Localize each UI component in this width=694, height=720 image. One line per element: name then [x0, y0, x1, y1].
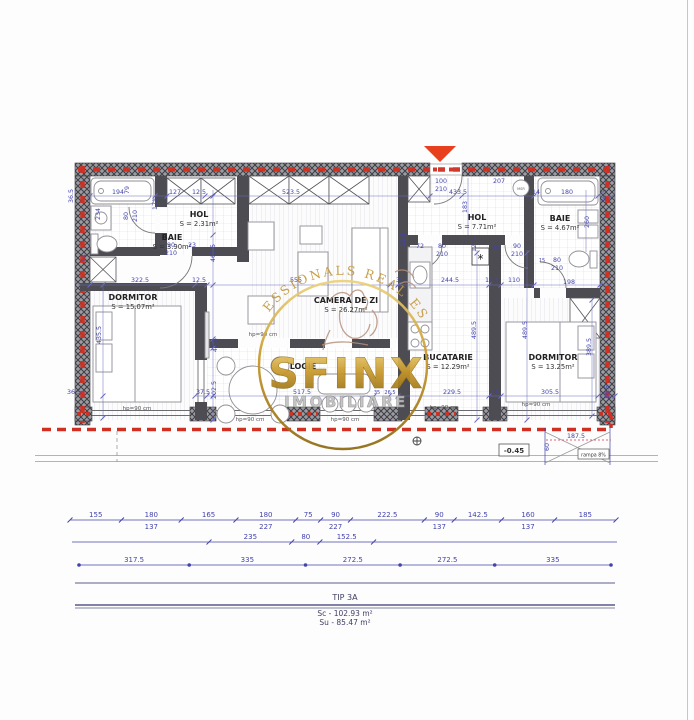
dim-label: 198 — [563, 279, 575, 286]
plan-type-label: TIP 3A — [331, 593, 358, 602]
dim-label: 435.5 — [96, 326, 103, 344]
dim-label: 12.5 — [471, 238, 478, 252]
dim-label: 180 — [561, 189, 573, 196]
dim-label: 110 — [508, 277, 520, 284]
dim-label: 467.5 — [210, 244, 217, 262]
room-name-label: DORMITOR — [109, 293, 158, 302]
room-area-label: S = 2.31m² — [180, 220, 219, 228]
watermark-arc-text: PROFESSIONALS REAL ESTATE — [0, 0, 432, 323]
room-name-label: HOL — [468, 213, 487, 222]
floor-plan-page: -0.45 rampa 8% BAIES = 3.90m²HOLS = 2.31… — [0, 0, 694, 720]
dim-label: 194 — [112, 189, 124, 196]
dim-row-value: 272.5 — [343, 556, 363, 564]
dim-row-subvalue: 137 — [433, 523, 446, 531]
dim-label: 16 — [493, 246, 499, 252]
dim-label: 187.5 — [567, 433, 585, 440]
dim-label: 14 — [491, 389, 499, 396]
title-block: TIP 3A Sc - 102.93 m² Su - 85.47 m² — [75, 583, 615, 627]
dim-label: 36.5 — [601, 189, 608, 203]
dim-row-subvalue: 227 — [259, 523, 272, 531]
dim-label: 171 — [152, 198, 159, 210]
dim-label: 14 — [532, 189, 540, 196]
room-name-label: CAMERA DE ZI — [314, 296, 378, 305]
dim-label: 489.5 — [522, 321, 529, 339]
dim-row-value: 235 — [244, 533, 257, 541]
dim-label: 36.5 — [604, 385, 611, 399]
dim-label: 100 — [435, 178, 447, 185]
dim-row-value: 160 — [521, 511, 534, 519]
dim-label: 244.5 — [441, 277, 459, 284]
dim-row-dot — [187, 563, 191, 567]
dim-row-value: 335 — [241, 556, 254, 564]
dim-label: 60 — [544, 443, 551, 451]
dim-label: 260 — [584, 216, 591, 228]
dim-label: 23 — [188, 242, 196, 249]
room-name-label: BAIE — [162, 233, 183, 242]
dim-label: 229.5 — [443, 389, 461, 396]
dim-label: 210 — [436, 251, 448, 258]
dim-label: 80 — [553, 257, 561, 264]
room-name-label: BUCATARIE — [423, 353, 473, 362]
washer-label: MSR — [517, 187, 525, 191]
dim-label: 90 — [513, 243, 521, 250]
hp-label: hp=90 cm — [522, 402, 551, 408]
dim-label: 127 — [169, 189, 181, 196]
dim-row-dot — [398, 563, 402, 567]
room-name-label: HOL — [190, 210, 209, 219]
level-label: -0.45 — [504, 447, 524, 455]
room-area-label: S = 12.29m² — [426, 363, 469, 371]
drain-icon — [413, 437, 421, 445]
dim-label: 183 — [462, 201, 469, 213]
dim-label: 37.5 — [196, 389, 210, 396]
dim-row-dot — [493, 563, 497, 567]
watermark-brand: SFINX — [268, 349, 425, 398]
dim-label: 90 — [167, 242, 175, 249]
dim-label: 80 — [438, 243, 446, 250]
dim-label: 210 — [132, 210, 139, 222]
dim-label: 210 — [551, 265, 563, 272]
dim-label: 210 — [165, 250, 177, 257]
dim-label: 79 — [124, 186, 131, 194]
dim-row-subvalue: 137 — [521, 523, 534, 531]
watermark-sub: IMOBILIARE — [284, 393, 408, 411]
dim-label: 207 — [493, 178, 505, 185]
dim-label: 12.5 — [485, 277, 499, 284]
hp-label: hp=90 cm — [331, 417, 360, 423]
dim-label: 433.5 — [449, 189, 467, 196]
dimension-rows: 1551801371651802277590227222.590137142.5… — [68, 511, 619, 567]
room-area-label: S = 7.71m² — [458, 223, 497, 231]
column-star: * — [478, 252, 484, 266]
entrance-marker-icon — [424, 146, 456, 162]
dim-label: 15 — [539, 258, 545, 264]
built-area-label: Sc - 102.93 m² — [317, 609, 372, 618]
dim-row-value: 142.5 — [468, 511, 488, 519]
dim-label: 12.5 — [400, 233, 407, 247]
dim-row-value: 180 — [145, 511, 158, 519]
dim-row-dot — [304, 563, 308, 567]
room-area-label: S = 4.67m² — [541, 224, 580, 232]
dim-row-dot — [609, 563, 613, 567]
dim-row-subvalue: 227 — [329, 523, 342, 531]
dim-row-value: 272.5 — [437, 556, 457, 564]
dim-row-value: 317.5 — [124, 556, 144, 564]
dim-row-value: 90 — [331, 511, 340, 519]
dim-label: 523.5 — [282, 189, 300, 196]
dim-row-value: 185 — [579, 511, 592, 519]
dim-row-value: 180 — [259, 511, 272, 519]
dim-row-value: 155 — [89, 511, 102, 519]
dim-row-value: 222.5 — [377, 511, 397, 519]
dim-label: 14 — [81, 254, 88, 262]
hp-label: hp=90 cm — [123, 406, 152, 412]
dim-label: 389.5 — [586, 338, 593, 356]
dim-label: 36.5 — [67, 389, 81, 396]
floor-plan-svg: -0.45 rampa 8% BAIES = 3.90m²HOLS = 2.31… — [0, 0, 694, 720]
dim-label: 489.5 — [471, 321, 478, 339]
room-name-label: DORMITOR — [529, 353, 578, 362]
room-area-label: S = 13.25m² — [531, 363, 574, 371]
dim-label: 36.5 — [68, 189, 75, 203]
dim-row-value: 75 — [304, 511, 313, 519]
dim-row-value: 335 — [546, 556, 559, 564]
room-area-label: S = 15.07m² — [111, 303, 154, 311]
room-name-label: BAIE — [550, 214, 571, 223]
dim-label: 202.5 — [211, 381, 218, 399]
dim-row-subvalue: 137 — [145, 523, 158, 531]
dim-label: 47.5 — [212, 338, 219, 352]
dim-label: 72 — [416, 243, 424, 250]
dim-row-dot — [77, 563, 81, 567]
hp-label: hp=90 cm — [430, 405, 459, 411]
dim-label: 210 — [511, 251, 523, 258]
dim-row-value: 80 — [301, 533, 310, 541]
dim-label: 12.5 — [192, 189, 206, 196]
dim-row-value: 165 — [202, 511, 215, 519]
dim-label: 305.5 — [541, 389, 559, 396]
dim-row-value: 90 — [435, 511, 444, 519]
usable-area-label: Su - 85.47 m² — [319, 618, 370, 627]
ramp-label: rampa 8% — [581, 453, 606, 459]
dim-label: 234 — [95, 208, 102, 220]
room-area-label: S = 26.27m² — [324, 306, 367, 314]
dim-label: 80 — [123, 212, 130, 220]
dim-label: 12.5 — [192, 277, 206, 284]
dim-label: 322.5 — [131, 277, 149, 284]
dim-row-value: 152.5 — [337, 533, 357, 541]
dim-label: 210 — [435, 186, 447, 193]
hp-label: hp=90 cm — [236, 417, 265, 423]
